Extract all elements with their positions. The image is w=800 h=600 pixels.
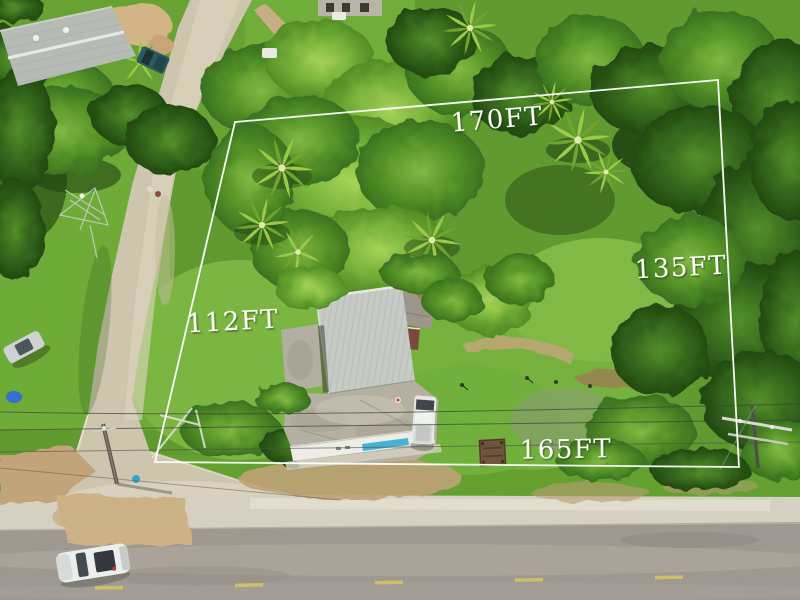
aerial-scene: 170FT 135FT 112FT 165FT xyxy=(0,0,800,600)
dimension-label-bottom: 165FT xyxy=(519,434,612,466)
dimension-label-left: 112FT xyxy=(186,305,280,340)
film-grain xyxy=(0,0,800,600)
dimension-label-right: 135FT xyxy=(634,251,728,286)
aerial-property-photo: 170FT 135FT 112FT 165FT xyxy=(0,0,800,600)
